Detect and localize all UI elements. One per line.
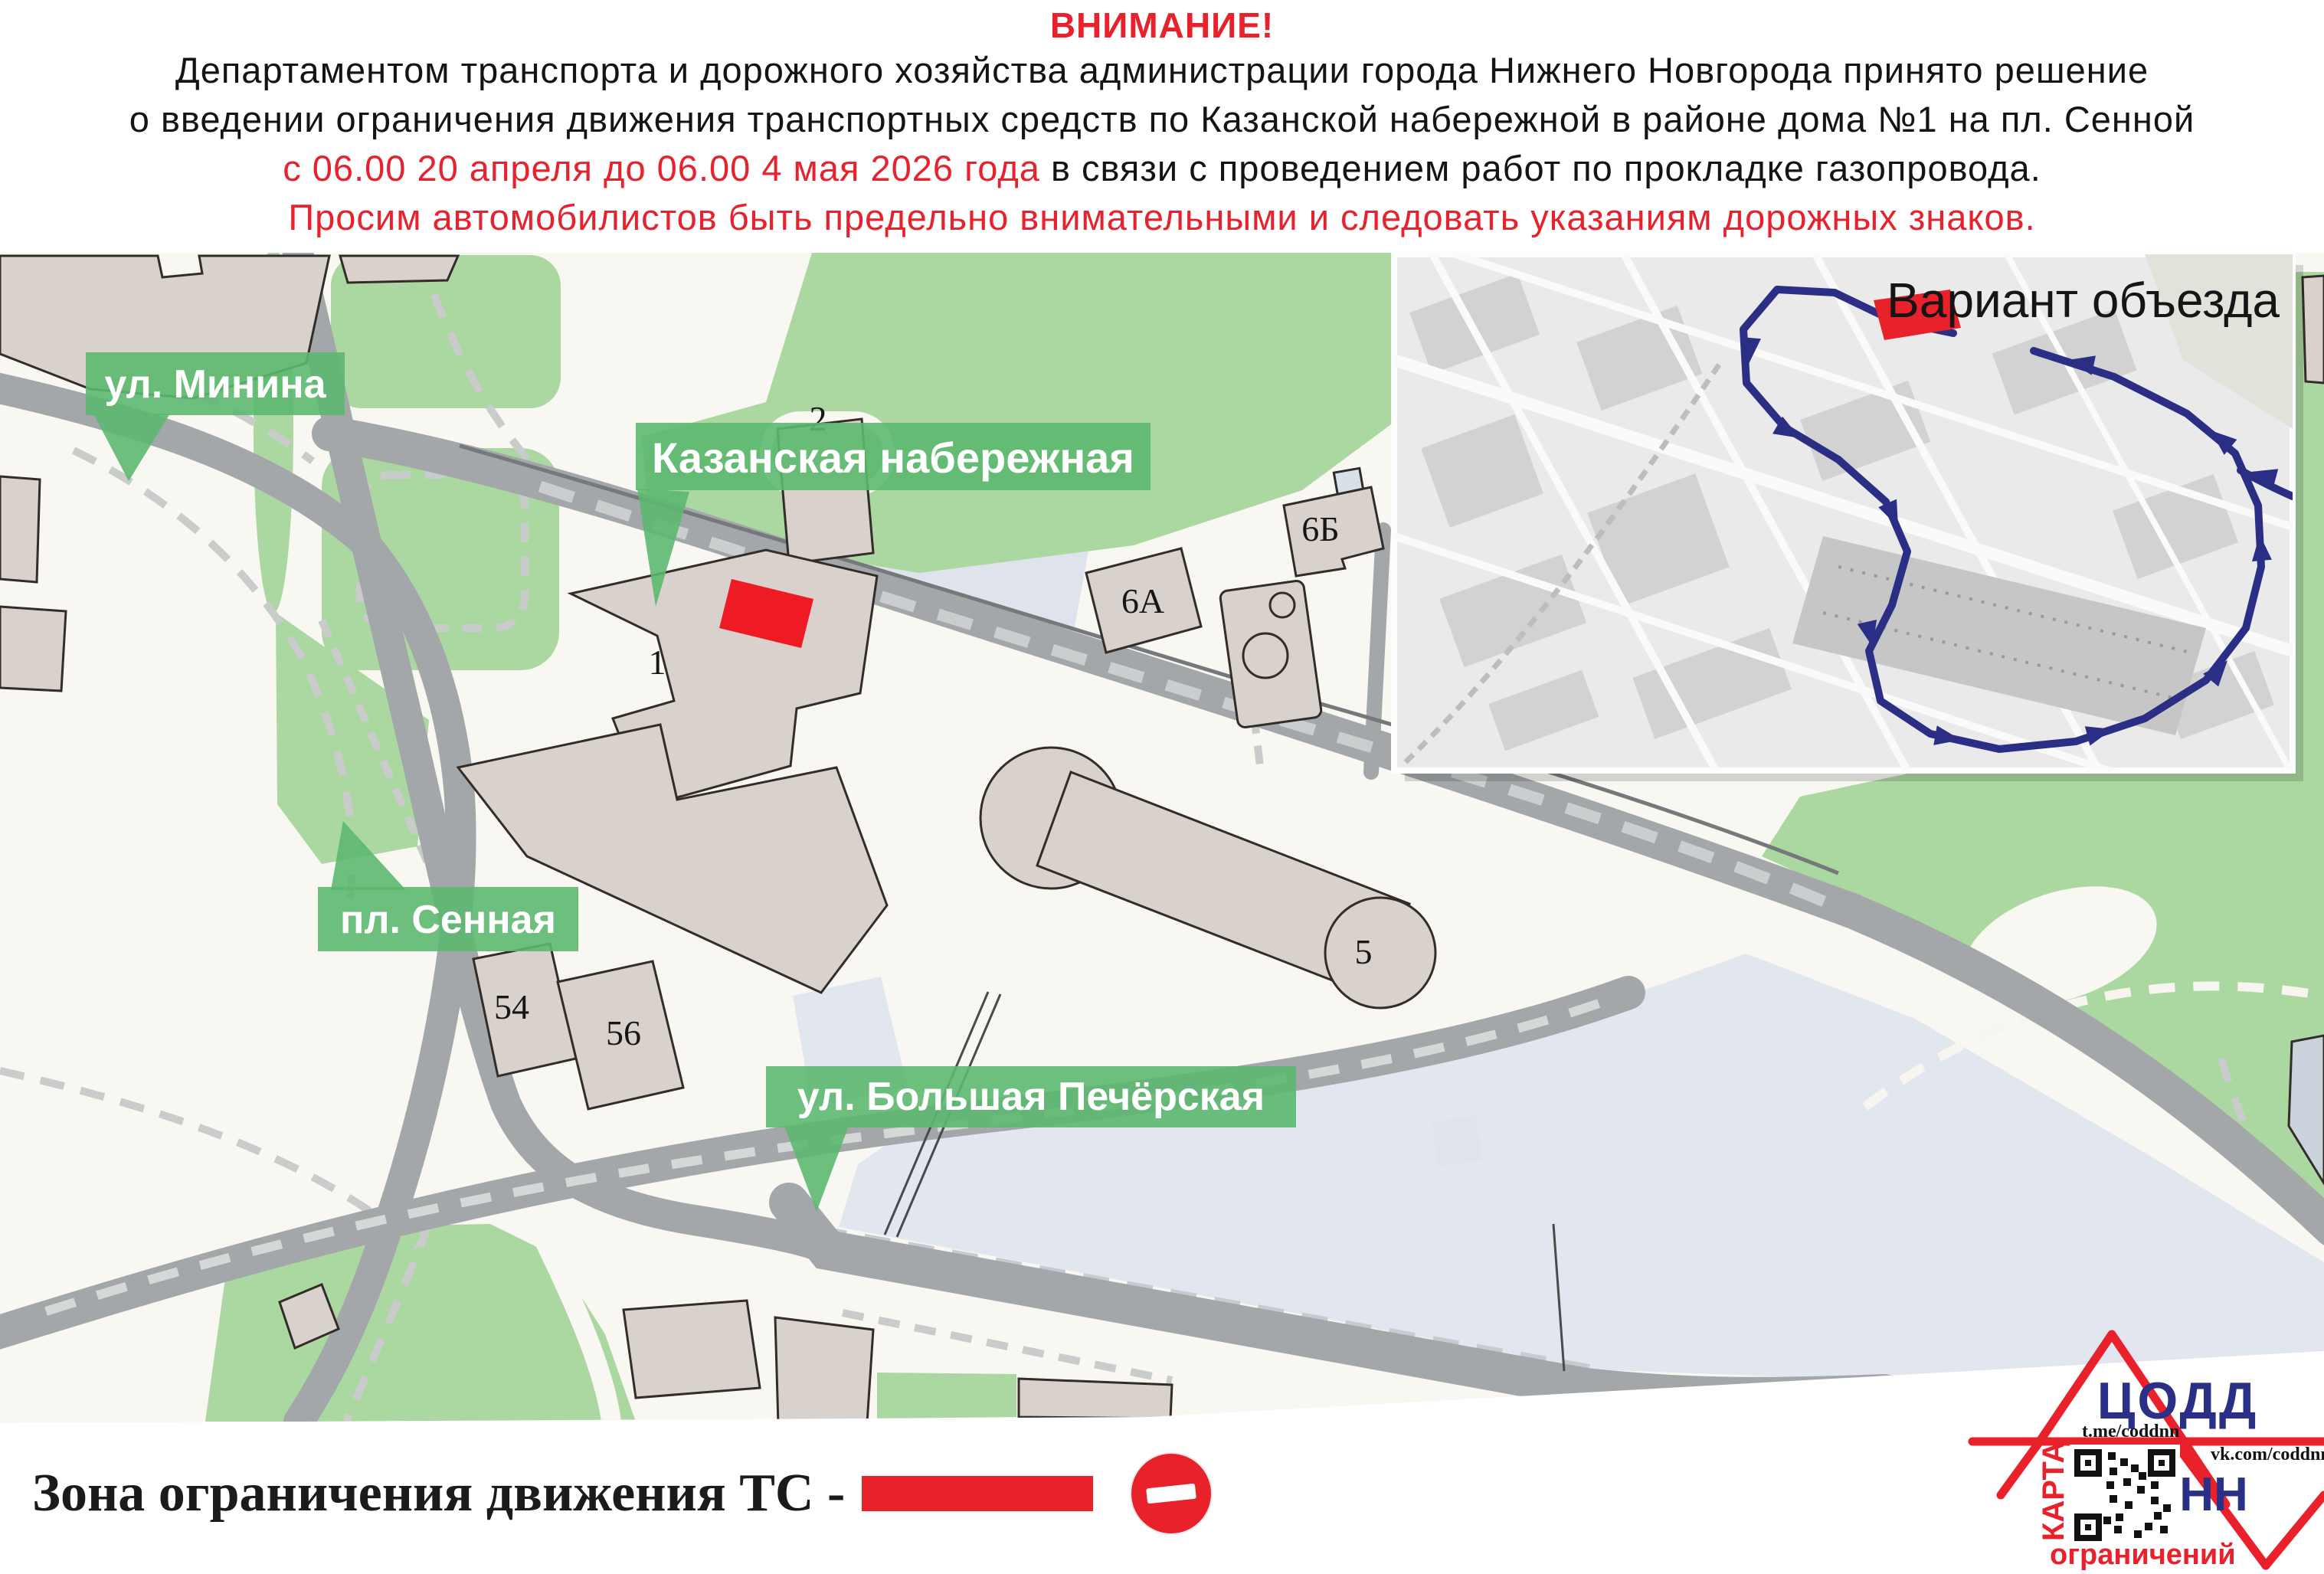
detour-inset: Вариант объезда bbox=[1394, 254, 2303, 831]
svg-text:Казанская набережная: Казанская набережная bbox=[652, 434, 1134, 482]
building-label-6a: 6А bbox=[1121, 581, 1164, 620]
building-label-1: 1 bbox=[649, 643, 666, 682]
logo-telegram: t.me/coddnn bbox=[2082, 1422, 2179, 1441]
codd-logo: ЦОДД НН t.me/coddnn vk.com/coddnn52 КАРТ… bbox=[1961, 1302, 2324, 1574]
legend: Зона ограничения движения ТС - bbox=[32, 1452, 1213, 1535]
notice-line-3: с 06.00 20 апреля до 06.00 4 мая 2026 го… bbox=[0, 144, 2324, 193]
notice-line-4: Просим автомобилистов быть предельно вни… bbox=[0, 193, 2324, 242]
notice-title: ВНИМАНИЕ! bbox=[0, 5, 2324, 46]
legend-text: Зона ограничения движения ТС - bbox=[32, 1463, 845, 1524]
notice-reason: в связи с проведением работ по прокладке… bbox=[1040, 148, 2041, 188]
no-entry-sign-icon bbox=[1130, 1452, 1213, 1535]
svg-text:ул. Минина: ул. Минина bbox=[104, 362, 326, 407]
logo-vk: vk.com/coddnn52 bbox=[2211, 1445, 2324, 1464]
qr-code bbox=[2070, 1445, 2180, 1546]
building-label-6b: 6Б bbox=[1301, 509, 1339, 548]
inset-title: Вариант объезда bbox=[1887, 273, 2280, 328]
svg-text:пл. Сенная: пл. Сенная bbox=[340, 898, 556, 942]
notice-dates: с 06.00 20 апреля до 06.00 4 мая 2026 го… bbox=[283, 148, 1040, 188]
building-label-54: 54 bbox=[494, 987, 529, 1026]
svg-text:ул. Большая Печёрская: ул. Большая Печёрская bbox=[797, 1075, 1265, 1119]
building-label-56: 56 bbox=[606, 1013, 641, 1052]
logo-nn: НН bbox=[2179, 1468, 2248, 1521]
building-label-5: 5 bbox=[1355, 932, 1373, 971]
notice-line-1: Департаментом транспорта и дорожного хоз… bbox=[0, 46, 2324, 95]
logo-karta: КАРТА bbox=[2037, 1441, 2070, 1541]
notice-line-2: о введении ограничения движения транспор… bbox=[0, 95, 2324, 144]
notice-header: ВНИМАНИЕ! Департаментом транспорта и дор… bbox=[0, 0, 2324, 242]
legend-red-line bbox=[862, 1476, 1093, 1511]
